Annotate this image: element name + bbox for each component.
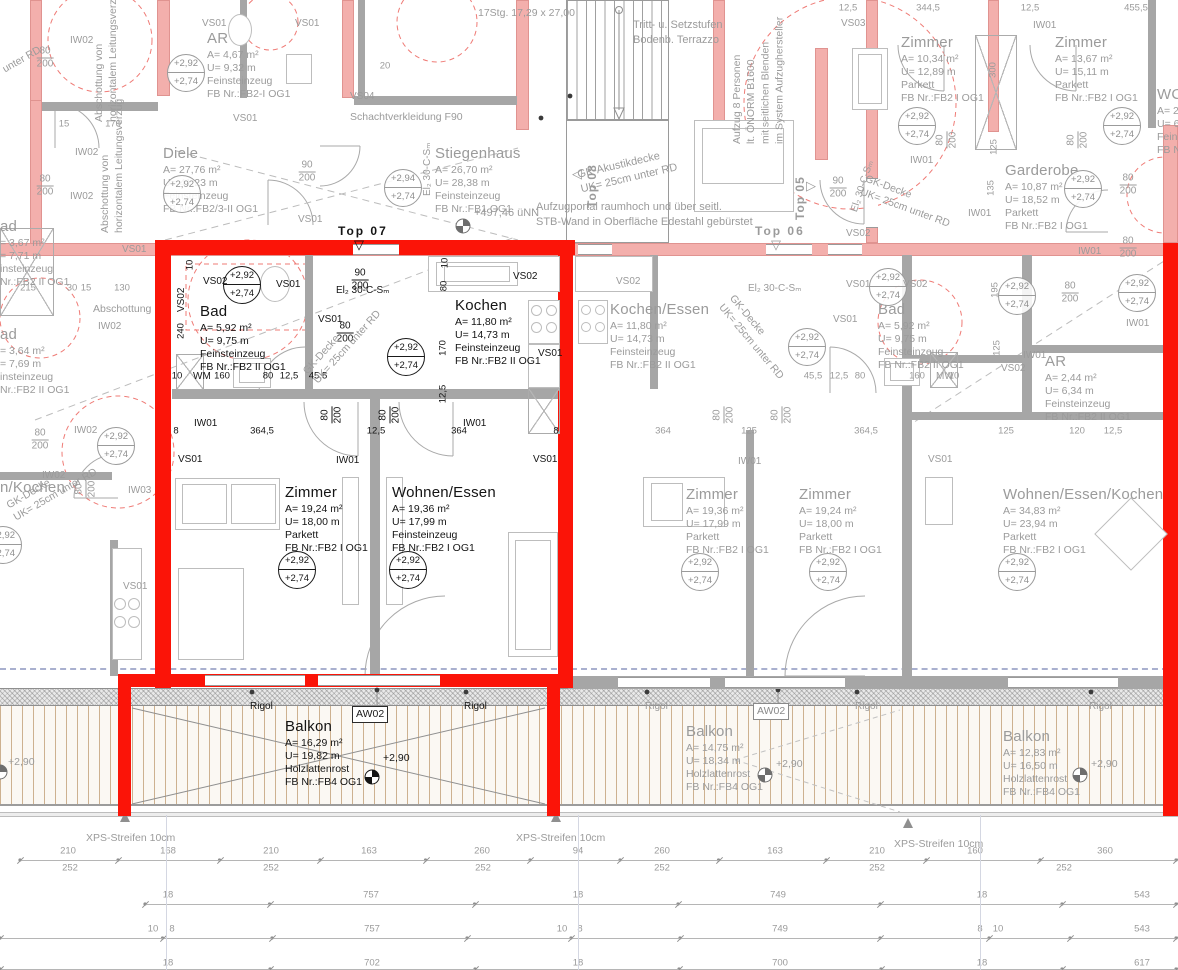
- room-fb: FB Nr.:FB4 OG1: [285, 776, 362, 789]
- room-name: Wohnen/Essen: [392, 484, 496, 502]
- dimension-label: 45,5: [804, 371, 823, 382]
- chain-dimension-value: 10: [557, 924, 568, 935]
- door-height: 200: [830, 189, 847, 200]
- level-circle: +2,92+2,74: [163, 175, 201, 213]
- door-height: 200: [1062, 294, 1079, 305]
- level-upper: +2,92: [390, 552, 426, 570]
- dimension-label: 80: [855, 371, 866, 382]
- level-upper: +2,92: [388, 339, 424, 357]
- level-lower: +2,74: [810, 572, 846, 589]
- room-u: U= 6: [1157, 118, 1178, 131]
- level-circle: +2,92+2,74: [389, 551, 427, 589]
- level-lower: +2,74: [999, 296, 1035, 313]
- room-u: U= 18,00 m: [799, 518, 882, 531]
- note-line: XPS-Streifen 10cm: [516, 831, 605, 845]
- fragment-line: insteinzeug: [0, 371, 69, 384]
- note-line: Aufzugportal raumhoch und über seitl.: [536, 200, 753, 215]
- room-name: Diele: [163, 145, 258, 163]
- wall-tag: IW01: [1126, 318, 1149, 329]
- dimension-label: 12,5: [438, 385, 449, 404]
- dimension-label: 12,5: [830, 371, 849, 382]
- wall-tag: Rigol: [1089, 701, 1112, 712]
- room-label-fragment: ad= 3,67 m²= 7,71 minsteinzeugNr.:FB2 II…: [0, 218, 69, 288]
- note-line: Abschottung von: [98, 128, 112, 233]
- room-floor: Parkett: [1003, 531, 1163, 544]
- vertical-annotation-note: Aufzug 8 Personenlt. ÖNORM B1600mit seit…: [730, 28, 787, 144]
- note-line: 17Stg. 17,29 x 27,00: [478, 6, 575, 20]
- wall-tag: IW01: [738, 456, 761, 467]
- dimension-label: 135: [986, 180, 997, 196]
- dimension-label: 20: [380, 61, 391, 72]
- wall-tag: VS01: [298, 214, 322, 225]
- level-upper: +2,92: [98, 428, 134, 446]
- chain-dimension-value: 749: [770, 890, 786, 901]
- dimension-label: 12,5: [839, 3, 858, 14]
- wall-segment: [118, 674, 131, 816]
- fragment-line: = 7,71 m: [0, 250, 69, 263]
- wall-opening: [205, 675, 305, 686]
- door-dimension-pair: 80200: [37, 174, 54, 199]
- room-area: A= 14,75 m²: [686, 742, 763, 755]
- wall-segment: [558, 240, 573, 688]
- room-area: A= 5,92 m²: [200, 322, 286, 335]
- room-name: Kochen/Essen: [610, 301, 709, 319]
- dimension-label: 12,5: [1104, 426, 1123, 437]
- door-width: 80: [320, 407, 333, 424]
- level-circle: +2,92+2,74: [1118, 274, 1156, 312]
- room-label: KochenA= 11,80 m²U= 14,73 mFeinsteinzeug…: [455, 297, 541, 367]
- door-dimension-pair: 90200: [352, 268, 369, 293]
- wall-tag: IW01: [1023, 350, 1046, 361]
- chain-dimension-value: 168: [160, 846, 176, 857]
- room-floor: Parkett: [799, 531, 882, 544]
- room-fb: FB Nr.:FB2 II OG1: [610, 359, 709, 372]
- room-label: BalkonA= 14,75 m²U= 18,34 mHolzlattenros…: [686, 723, 763, 793]
- chain-dimension-value: 8: [169, 924, 174, 935]
- wall-segment: [358, 0, 365, 98]
- dimension-label: 130: [114, 283, 130, 294]
- annotation-note: Abschottung: [93, 302, 151, 316]
- unit-arrow-icon: ▽: [771, 237, 781, 253]
- fragment-line: Nr.:FB2 II OG1: [0, 384, 69, 397]
- dimension-label: 15: [81, 283, 92, 294]
- room-name: Zimmer: [1055, 34, 1138, 52]
- room-name: Stiegenhaus: [435, 145, 521, 163]
- leader-dot: [568, 94, 573, 99]
- room-floor: Fein: [1157, 131, 1178, 144]
- door-width: 80: [32, 428, 49, 441]
- room-area: A= 10,34 m²: [901, 53, 984, 66]
- wall-tag: WM: [193, 371, 211, 382]
- level-upper: +2,92: [899, 108, 935, 126]
- note-line: im System Aufzughersteller: [773, 28, 787, 144]
- dimension-chain-line: [20, 860, 1178, 861]
- room-u: U= 18,00 m: [285, 516, 368, 529]
- dimension-label: 12,5: [280, 371, 299, 382]
- dimension-label: 344,5: [916, 3, 940, 14]
- dimension-label: 125: [998, 426, 1014, 437]
- annotation-note: Schachtverkleidung F90: [350, 110, 463, 124]
- wall-tag: VS01: [202, 18, 226, 29]
- room-floor: Holzlattenrost: [1003, 773, 1080, 786]
- room-label: BalkonA= 12,83 m²U= 16,50 mHolzlattenros…: [1003, 728, 1080, 798]
- room-area: A= 4,67 m²: [207, 49, 290, 62]
- wall-tag: VS01: [233, 113, 257, 124]
- chain-dimension-value: 252: [654, 863, 670, 874]
- room-u: U= 9,75 m: [200, 335, 286, 348]
- wall-tag: VS01: [928, 454, 952, 465]
- room-label: ZimmerA= 19,24 m²U= 18,00 mParkettFB Nr.…: [799, 486, 882, 556]
- level-circle: +2,92+2,74: [387, 338, 425, 376]
- level-circle: +2,92+2,74: [809, 553, 847, 591]
- chain-dimension-value: 252: [475, 863, 491, 874]
- note-line: XPS-Streifen 10cm: [86, 831, 175, 845]
- chain-dimension-value: 10: [148, 924, 159, 935]
- room-floor: Feinsteinzeug: [455, 342, 541, 355]
- room-label: StiegenhausA= 26,70 m²U= 28,38 mFeinstei…: [435, 145, 521, 215]
- chain-dimension-value: 757: [364, 924, 380, 935]
- room-name: Balkon: [285, 718, 362, 736]
- wall-tag: VS02: [1001, 363, 1025, 374]
- room-floor: Holzlattenrost: [686, 768, 763, 781]
- room-label: ARA= 4,67 m²U= 9,32 mFeinsteinzeugFB Nr.…: [207, 30, 290, 100]
- chain-dimension-value: 163: [767, 846, 783, 857]
- room-area: A= 26,70 m²: [435, 164, 521, 177]
- room-fb: FB Nr.:FB2 II OG1: [455, 355, 541, 368]
- wall-tag: Rigol: [464, 701, 487, 712]
- chain-dimension-value: 543: [1134, 890, 1150, 901]
- wall-tag: VS01: [846, 279, 870, 290]
- dimension-label: 160: [909, 371, 925, 382]
- level-lower: +2,74: [1104, 126, 1140, 143]
- level-compass-quadrant: [1080, 768, 1087, 775]
- height-mark: +2,90: [8, 756, 35, 768]
- dimension-label: 455,5: [1124, 3, 1148, 14]
- chain-dimension-value: 252: [62, 863, 78, 874]
- dimension-label: 15: [59, 119, 70, 130]
- room-u: U= 14,73 m: [610, 333, 709, 346]
- door-dimension-pair: 90200: [830, 176, 847, 201]
- room-u: U= 17,99 m: [392, 516, 496, 529]
- dimension-label: 215: [20, 283, 36, 294]
- room-area: A= 2: [1157, 105, 1178, 118]
- dimension-label: 8: [553, 426, 558, 437]
- door-dimension-pair: 80200: [1120, 236, 1137, 261]
- chain-dimension-value: 360: [1097, 846, 1113, 857]
- fragment-line: = 3,64 m²: [0, 345, 69, 358]
- chain-dimension-value: 252: [869, 863, 885, 874]
- level-lower: +2,74: [98, 446, 134, 463]
- note-line: mit seitlichen Blenden: [758, 28, 772, 144]
- unit-arrow-icon: ◁: [572, 166, 582, 182]
- room-u: U= 19,82 m: [285, 750, 362, 763]
- unit-arrow-icon: ▽: [354, 237, 364, 253]
- room-name: WC: [1157, 86, 1178, 104]
- level-circle: +2,92+2,74: [681, 553, 719, 591]
- wall-tag: VS02: [176, 288, 187, 312]
- room-floor: Feinsteinzeug: [200, 348, 286, 361]
- dimension-label: 364,5: [854, 426, 878, 437]
- wall-tag: VS01: [123, 581, 147, 592]
- leader-dot: [855, 690, 860, 695]
- room-fb: FB Nr.:FB2 II OG1: [1045, 411, 1131, 424]
- level-lower: +2,74: [168, 73, 204, 90]
- room-name: Zimmer: [901, 34, 984, 52]
- wall-tag: El₂ 30-C-Sₘ: [748, 283, 801, 294]
- level-upper: +2,92: [168, 55, 204, 73]
- door-height: 200: [725, 407, 736, 424]
- level-upper: +2,92: [224, 267, 260, 285]
- leader-dot: [1089, 690, 1094, 695]
- clearance-dashed-circle: [397, 0, 477, 62]
- chain-dimension-value: 749: [772, 924, 788, 935]
- room-floor: Feinsteinzeug: [392, 529, 496, 542]
- fragment-line: = 7,69 m: [0, 358, 69, 371]
- chain-dimension-value: 617: [1134, 958, 1150, 969]
- room-floor: Parkett: [285, 529, 368, 542]
- room-floor: Feinsteinzeug: [435, 190, 521, 203]
- wall-tag: VS01: [276, 279, 300, 290]
- room-name: Balkon: [1003, 728, 1080, 746]
- furniture-fixture: [925, 477, 953, 525]
- dimension-label: 12,5: [1021, 3, 1040, 14]
- door-dimension-pair: 80200: [1120, 173, 1137, 198]
- room-label: Wohnen/Essen/KochenA= 34,83 m²U= 23,94 m…: [1003, 486, 1163, 556]
- dimension-label: 8: [173, 426, 178, 437]
- door-swing-arc: [399, 402, 453, 456]
- chain-dimension-value: 210: [869, 846, 885, 857]
- wall-tag: IW01: [1033, 20, 1056, 31]
- furniture-fixture: [231, 484, 276, 524]
- door-height: 200: [1079, 132, 1090, 149]
- wall-tag: VS01: [538, 348, 562, 359]
- dimension-chain-line: [0, 938, 1178, 939]
- room-label: WCA= 2U= 6FeinFB N: [1157, 86, 1178, 156]
- unit-number-label: Top 08: [585, 148, 599, 208]
- wall-tag: IW01: [194, 418, 217, 429]
- level-circle: +2,92+2,74: [869, 268, 907, 306]
- door-dimension-pair: 80200: [770, 407, 795, 424]
- level-lower: +2,74: [870, 287, 906, 304]
- wall-opening: [318, 675, 440, 686]
- dimension-label: 80: [263, 371, 274, 382]
- level-lower: +2,74: [388, 357, 424, 374]
- level-lower: +2,74: [899, 126, 935, 143]
- room-area: A= 19,36 m²: [686, 505, 769, 518]
- wall-opening: [1008, 677, 1118, 688]
- chain-dimension-value: 702: [364, 958, 380, 969]
- floor-plan-canvas: ARA= 4,67 m²U= 9,32 mFeinsteinzeugFB Nr.…: [0, 0, 1178, 970]
- dimension-label: 80: [439, 281, 450, 292]
- room-name: Zimmer: [686, 486, 769, 504]
- fragment-line: = 3,67 m²: [0, 237, 69, 250]
- furniture-fixture: [114, 616, 126, 628]
- level-upper: +2,92: [1104, 108, 1140, 126]
- wall-tag: VS01: [178, 454, 202, 465]
- room-floor: Parkett: [1005, 207, 1088, 220]
- wall-segment: [370, 399, 380, 676]
- dimension-label: 125: [992, 340, 1003, 356]
- door-width: 80: [712, 407, 725, 424]
- door-width: 80: [37, 174, 54, 187]
- window-type-tag: AW02: [753, 703, 789, 720]
- level-circle: +2,92+2,74: [898, 107, 936, 145]
- note-line: Abschottung von: [92, 0, 106, 122]
- leader-dot: [464, 690, 469, 695]
- level-circle: +2,92+2,74: [0, 526, 22, 564]
- chain-dimension-value: 18: [163, 890, 174, 901]
- wall-segment: [1032, 345, 1178, 353]
- furniture-fixture: [178, 568, 244, 660]
- wall-segment: [1163, 243, 1178, 690]
- dimension-label: 160: [214, 371, 230, 382]
- wall-tag: IW03: [128, 485, 151, 496]
- room-area: A= 19,36 m²: [392, 503, 496, 516]
- room-label: BalkonA= 16,29 m²U= 19,82 mHolzlattenros…: [285, 718, 362, 788]
- dimension-label: 10: [440, 258, 451, 269]
- level-upper: +2,94: [385, 170, 421, 188]
- dimension-label: 125: [989, 139, 1000, 155]
- room-fb: FB Nr.:FB2-I OG1: [207, 88, 290, 101]
- room-label: BadA= 5,92 m²U= 9,75 mFeinsteinzeugFB Nr…: [200, 303, 286, 373]
- level-upper: +2,92: [0, 527, 21, 545]
- room-u: U= 12,89 m: [901, 66, 984, 79]
- dimension-label: 195: [990, 282, 1001, 298]
- dimension-label: 240: [176, 323, 187, 339]
- room-label: ZimmerA= 13,67 m²U= 15,11 mParkettFB Nr.…: [1055, 34, 1138, 104]
- room-area: A= 16,29 m²: [285, 737, 362, 750]
- annotation-note: Aufzugportal raumhoch und über seitl.STB…: [536, 200, 753, 230]
- level-circle: +2,92+2,74: [223, 266, 261, 304]
- wall-opening: [828, 244, 862, 255]
- furniture-fixture: [581, 305, 591, 315]
- door-width: 80: [1066, 132, 1079, 149]
- chain-dimension-value: 260: [474, 846, 490, 857]
- door-width: 90: [830, 176, 847, 189]
- room-u: U= 16,50 m: [1003, 760, 1080, 773]
- room-fb: FB Nr.:FB4 OG1: [1003, 786, 1080, 799]
- level-lower: +2,74: [0, 545, 21, 562]
- level-upper: +2,92: [1065, 171, 1101, 189]
- room-u: U= 6,34 m: [1045, 385, 1131, 398]
- fragment-line: ad: [0, 218, 69, 236]
- level-compass-quadrant: [456, 226, 463, 233]
- room-u: U= 15,11 m: [1055, 66, 1138, 79]
- note-line: Aufzug 8 Personen: [730, 28, 744, 144]
- room-floor: Feinsteinzeug: [878, 346, 964, 359]
- room-area: A= 11,80 m²: [610, 320, 709, 333]
- wall-tag: VS03: [841, 18, 865, 29]
- room-area: A= 19,24 m²: [285, 503, 368, 516]
- room-label: ZimmerA= 19,24 m²U= 18,00 mParkettFB Nr.…: [285, 484, 368, 554]
- level-upper: +2,92: [164, 176, 200, 194]
- room-u: U= 17,99 m: [686, 518, 769, 531]
- room-name: Kochen: [455, 297, 541, 315]
- wall-tag: IW02: [74, 425, 97, 436]
- room-area: A= 19,24 m²: [799, 505, 882, 518]
- room-u: U= 23,94 m: [1003, 518, 1163, 531]
- room-floor: Holzlattenrost: [285, 763, 362, 776]
- wall-tag: VS01: [533, 454, 557, 465]
- window-type-tag: AW02: [352, 706, 388, 723]
- door-height: 200: [1120, 186, 1137, 197]
- fragment-line: ad: [0, 326, 69, 344]
- level-circle: +2,94+2,74: [384, 169, 422, 207]
- door-width: 80: [1062, 281, 1079, 294]
- unit-arrow-icon: ▷: [806, 178, 816, 194]
- wall-opening: [618, 677, 710, 688]
- room-floor: Parkett: [1055, 79, 1138, 92]
- room-name: Bad: [200, 303, 286, 321]
- level-compass-quadrant: [0, 765, 7, 772]
- room-area: A= 34,83 m²: [1003, 505, 1163, 518]
- leader-dot: [645, 690, 650, 695]
- door-height: 200: [37, 187, 54, 198]
- door-swing-arc: [320, 146, 360, 186]
- chain-dimension-value: 543: [1134, 924, 1150, 935]
- unit-number-label: Top 05: [793, 160, 807, 220]
- wall-segment: [172, 389, 558, 399]
- unit-number-label: Top 07: [338, 224, 388, 238]
- door-dimension-pair: 90200: [299, 160, 316, 185]
- room-u: U= 28,38 m: [435, 177, 521, 190]
- wall-tag: IW02: [70, 191, 93, 202]
- dimension-label: 170: [438, 340, 449, 356]
- vertical-annotation-note: Abschottung vonhorizontalem Leitungsverz…: [98, 128, 126, 233]
- dimension-label: 300: [988, 62, 999, 78]
- dimension-label: 10: [172, 371, 183, 382]
- dimension-label: 364,5: [250, 426, 274, 437]
- furniture-fixture: [575, 256, 653, 292]
- level-upper: +2,92: [870, 269, 906, 287]
- level-upper: +2,92: [999, 278, 1035, 296]
- chain-dimension-value: 10: [993, 924, 1004, 935]
- level-upper: +2,92: [789, 329, 825, 347]
- room-label-fragment: ad= 3,64 m²= 7,69 minsteinzeugNr.:FB2 II…: [0, 326, 69, 396]
- dimension-label: 10: [185, 260, 196, 271]
- level-compass-quadrant: [365, 777, 372, 784]
- leader-dot: [539, 116, 544, 121]
- level-compass-quadrant: [372, 770, 379, 777]
- level-upper: +2,92: [279, 552, 315, 570]
- wall-tag: VS02: [203, 276, 227, 287]
- room-name: AR: [207, 30, 290, 48]
- door-dimension-pair: 80200: [320, 407, 345, 424]
- wall-tag: VS01: [833, 314, 857, 325]
- room-floor: Feinsteinzeug: [610, 346, 709, 359]
- chain-dimension-value: 18: [163, 958, 174, 969]
- level-upper: +2,92: [682, 554, 718, 572]
- height-mark: +2,90: [776, 758, 803, 770]
- room-u: U= 9,75 m: [878, 333, 964, 346]
- dimension-label: 10: [949, 371, 960, 382]
- wall-segment: [342, 0, 354, 98]
- furniture-fixture: [651, 483, 683, 521]
- door-height: 200: [299, 173, 316, 184]
- wall-tag: IW01: [336, 455, 359, 466]
- door-height: 200: [32, 441, 49, 452]
- level-circle: +2,92+2,74: [278, 551, 316, 589]
- dimension-label: 125: [741, 426, 757, 437]
- wall-opening: [578, 244, 612, 255]
- furniture-fixture: [515, 540, 551, 650]
- door-dimension-pair: 80200: [32, 428, 49, 453]
- dimension-label: 364: [655, 426, 671, 437]
- chain-dimension-value: 252: [263, 863, 279, 874]
- room-floor: Parkett: [686, 531, 769, 544]
- wall-tag: VS01: [295, 18, 319, 29]
- chain-dimension-value: 210: [263, 846, 279, 857]
